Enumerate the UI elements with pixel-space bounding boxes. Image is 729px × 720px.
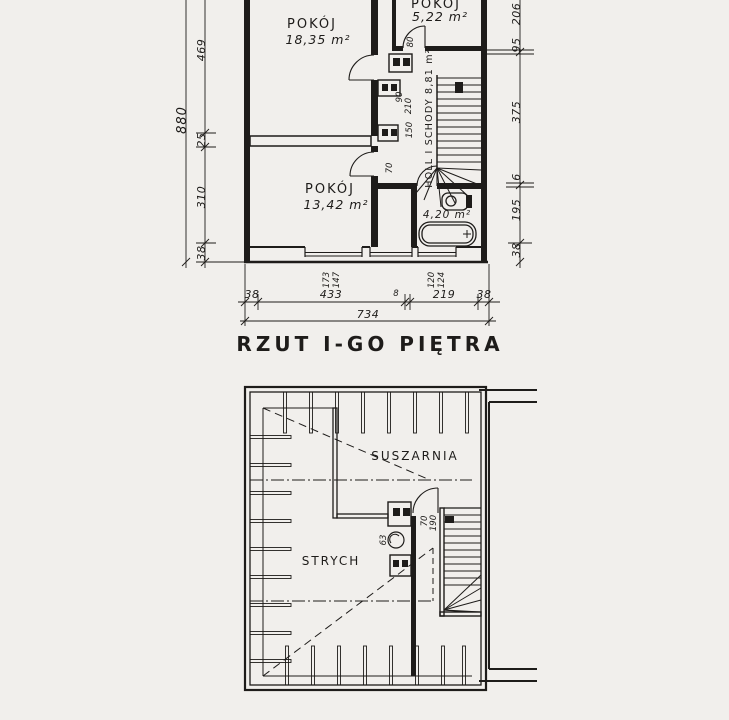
chimney-blocks-attic bbox=[388, 502, 411, 576]
dim-left-38: 38 bbox=[195, 246, 208, 261]
suszarnia-walls bbox=[333, 408, 388, 518]
room-area-pokoj-large: 18,35 m² bbox=[286, 32, 351, 47]
door-mark-70: 70 bbox=[385, 163, 395, 174]
room-area-pokoj-medium: 13,42 m² bbox=[304, 197, 369, 212]
plan-title: RZUT I-GO PIĘTRA bbox=[236, 332, 503, 356]
dim-bottom-38b: 38 bbox=[477, 288, 492, 301]
dim-left-469: 469 bbox=[195, 39, 208, 62]
dim-right-95: 95 bbox=[510, 38, 523, 53]
door-attic bbox=[413, 488, 438, 513]
dim-bottom-433: 433 bbox=[320, 288, 343, 301]
partition-wall-band bbox=[250, 136, 371, 146]
room-label-hall-stairs: HOLL I SCHODY 8,81 m² bbox=[424, 48, 435, 187]
dim-right-206: 206 bbox=[510, 3, 523, 26]
dim-bottom-219: 219 bbox=[433, 288, 456, 301]
door-mark-80: 80 bbox=[406, 37, 416, 48]
dim-bottom-total: 734 bbox=[357, 308, 380, 321]
upper-bottom-wall-windows bbox=[244, 247, 488, 262]
dim-right-6: 6 bbox=[510, 173, 523, 181]
dim-right-195: 195 bbox=[510, 199, 523, 222]
upper-floor-plan: POKÓJ 18,35 m² POKÓJ 5,22 m² POKÓJ 13,42… bbox=[175, 0, 534, 326]
room-area-pokoj-small: 5,22 m² bbox=[412, 9, 468, 24]
stair-entry-mark-attic bbox=[445, 516, 454, 523]
window2-height: 124 bbox=[437, 272, 447, 288]
window1-width: 173 bbox=[322, 272, 332, 288]
attic-floor-plan: SUSZARNIA STRYCH 70 190 63 bbox=[245, 387, 537, 690]
staircase-attic bbox=[440, 508, 481, 616]
dim-bottom-38a: 38 bbox=[245, 288, 260, 301]
dim-left-25: 25 bbox=[195, 133, 208, 148]
room-area-bathroom: 4,20 m² bbox=[423, 209, 471, 221]
scanned-floor-plan-page: POKÓJ 18,35 m² POKÓJ 5,22 m² POKÓJ 13,42… bbox=[0, 0, 729, 720]
stair-entry-mark bbox=[455, 82, 463, 93]
door-mark-210: 210 bbox=[404, 98, 414, 114]
floor-plan-drawing: POKÓJ 18,35 m² POKÓJ 5,22 m² POKÓJ 13,42… bbox=[0, 0, 729, 720]
cistern bbox=[466, 195, 472, 208]
dim-right-38: 38 bbox=[510, 243, 523, 258]
dim-left-total: 880 bbox=[175, 106, 190, 134]
stair-partition-wall bbox=[411, 516, 416, 676]
attic-door-height: 190 bbox=[429, 515, 439, 531]
room-label-suszarnia: SUSZARNIA bbox=[371, 449, 459, 463]
dim-left-310: 310 bbox=[195, 186, 208, 209]
window2-width: 120 bbox=[427, 272, 437, 288]
window1-height: 147 bbox=[332, 271, 342, 288]
room-label-strych: STRYCH bbox=[302, 554, 361, 568]
dim-bottom-8: 8 bbox=[393, 289, 399, 299]
flue-mark-63: 63 bbox=[379, 535, 389, 546]
dim-right-375: 375 bbox=[510, 101, 523, 124]
adjacent-building-outline bbox=[479, 390, 537, 681]
rafter-ticks bbox=[250, 392, 469, 685]
door-mark-150: 150 bbox=[405, 122, 415, 138]
upper-walls bbox=[244, 0, 487, 262]
room-label-pokoj-medium: POKÓJ bbox=[305, 181, 355, 197]
room-label-pokoj-large: POKÓJ bbox=[287, 16, 337, 32]
